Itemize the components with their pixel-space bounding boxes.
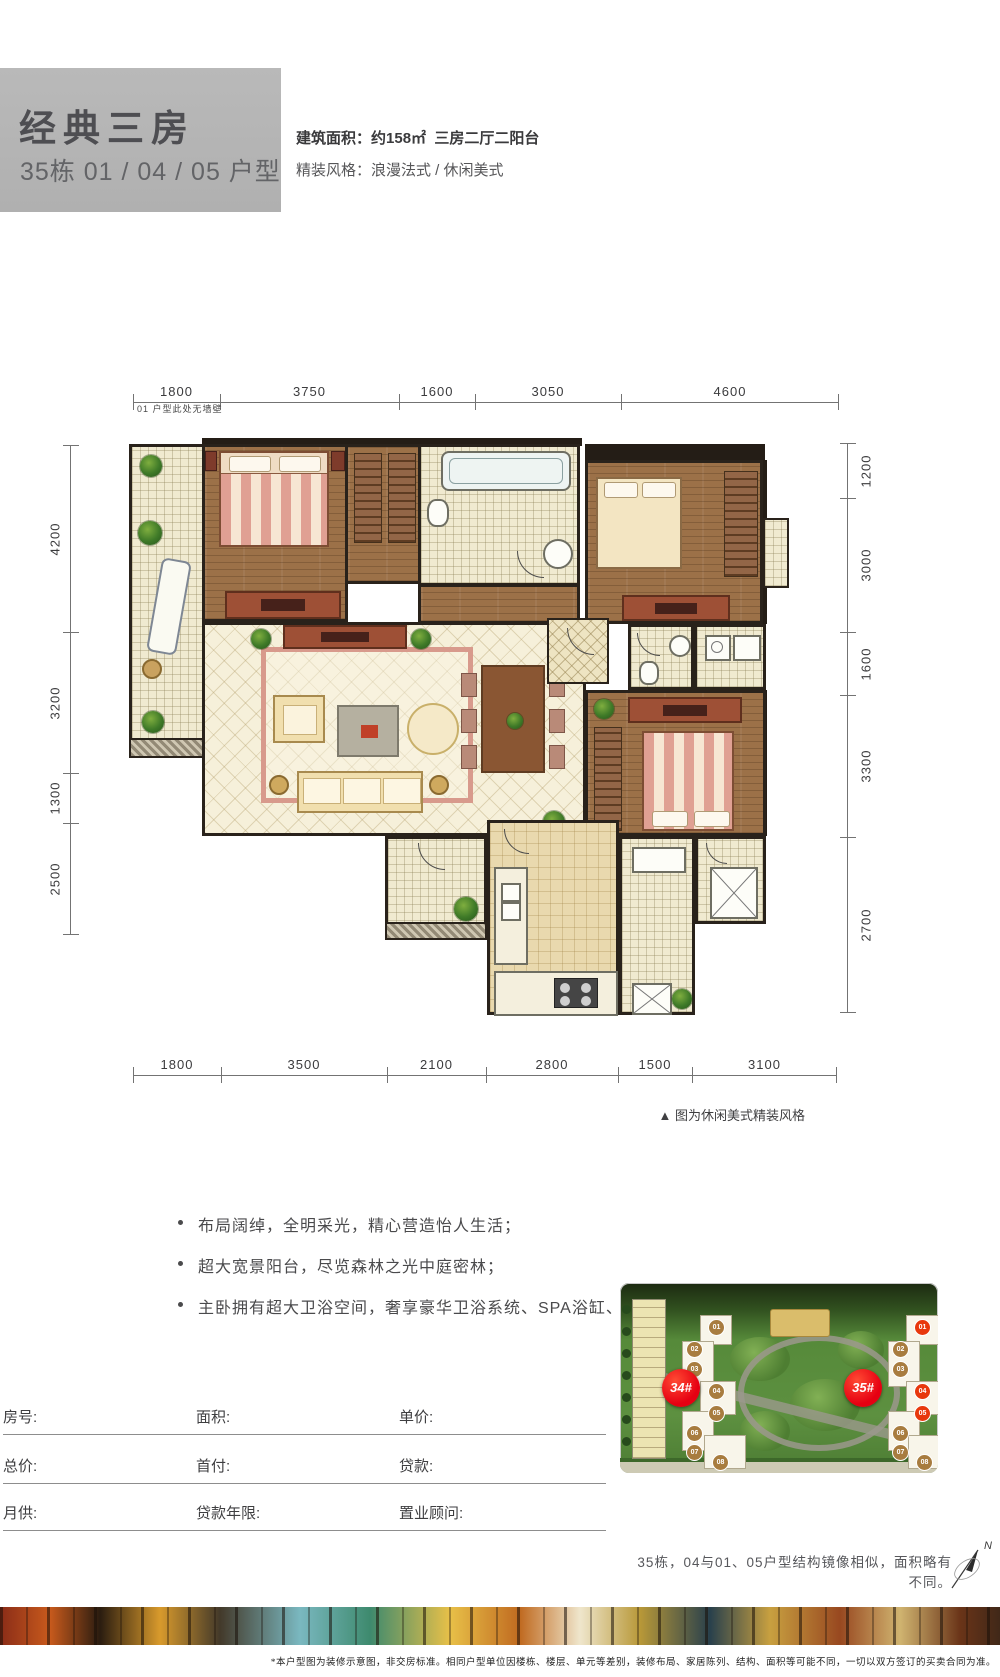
cabinet <box>632 847 686 873</box>
unit-subtitle: 35栋 01 / 04 / 05 户型 <box>20 152 281 188</box>
dim-right-2: 3000 <box>847 498 848 632</box>
form-label-room: 房号: <box>3 1406 37 1427</box>
dining-table <box>481 665 545 773</box>
spec-style-line: 精装风格：浪漫法式 / 休闲美式 <box>296 159 539 180</box>
dining-chair <box>549 709 565 733</box>
plant-icon <box>672 989 692 1009</box>
plant-icon <box>142 711 164 733</box>
unit-34-08: 08 <box>712 1454 729 1471</box>
toilet <box>427 499 449 527</box>
kitchen <box>487 820 619 1015</box>
siteplan-caption: 35栋，04与01、05户型结构镜像相似，面积略有不同。 <box>630 1551 952 1591</box>
coffee-table <box>337 705 399 757</box>
nightstand <box>205 451 217 471</box>
door-arc <box>418 843 445 870</box>
fridge <box>632 983 672 1015</box>
pillow <box>279 456 321 472</box>
perimeter-walk <box>620 1458 938 1473</box>
stove <box>554 978 598 1008</box>
unit-34-06: 06 <box>686 1425 703 1442</box>
tv-console <box>225 591 341 619</box>
wall-note: 01 户型此处无墙壁 <box>137 402 223 415</box>
plant-icon <box>454 897 478 921</box>
unit-34-02: 02 <box>686 1341 703 1358</box>
north-label: N <box>984 1540 992 1552</box>
dining-chair <box>549 745 565 769</box>
pillow <box>642 482 676 498</box>
sink-basin <box>501 902 521 921</box>
dim-bottom-6: 3100 <box>692 1059 837 1076</box>
unit-34-05: 05 <box>708 1405 725 1422</box>
side-table <box>269 775 289 795</box>
master-bedroom <box>202 444 348 622</box>
side-table <box>429 775 449 795</box>
balcony-rail <box>385 922 487 940</box>
form-row-3: 月供: 贷款年限: 置业顾问: <box>3 1500 606 1531</box>
feature-item: 超大宽景阳台，尽览森林之光中庭密林； <box>176 1253 759 1277</box>
spec-style-label: 精装风格： <box>296 162 371 179</box>
dim-top-3: 1600 <box>399 386 475 403</box>
bedroom-2 <box>585 460 763 624</box>
wardrobe-shelf <box>594 727 622 831</box>
bathroom-2 <box>628 624 694 690</box>
unit-35-04: 04 <box>914 1383 931 1400</box>
sofa <box>297 771 423 813</box>
dim-row-bottom: 1800 3500 2100 2800 1500 3100 <box>133 1059 837 1076</box>
sink <box>669 635 691 657</box>
dim-left-4: 2500 <box>70 823 71 935</box>
dresser <box>628 697 742 723</box>
unit-35-07: 07 <box>892 1444 909 1461</box>
master-bed <box>219 451 329 547</box>
ac-ledge <box>763 518 789 588</box>
dining-chair <box>461 673 477 697</box>
living-dining-room <box>202 622 586 836</box>
dining-chair <box>461 709 477 733</box>
toilet <box>639 661 659 685</box>
badge-34: 34# <box>662 1369 700 1407</box>
dim-top-1: 1800 <box>133 386 220 403</box>
bedroom-3 <box>585 690 766 836</box>
plant-icon <box>594 699 614 719</box>
dim-row-top: 1800 3750 1600 3050 4600 <box>133 386 839 403</box>
washer <box>705 635 731 661</box>
wardrobe-shelf <box>724 471 758 577</box>
dim-right-4: 3300 <box>847 695 848 837</box>
plan-caption: ▲ 图为休闲美式精装风格 <box>520 1105 805 1124</box>
street-building <box>632 1299 666 1459</box>
decorative-art-strip <box>0 1607 1000 1645</box>
master-bathroom <box>418 444 580 586</box>
unit-34-07: 07 <box>686 1444 703 1461</box>
balcony-left <box>129 444 205 758</box>
unit-35-02: 02 <box>892 1341 909 1358</box>
door-arc <box>517 551 544 578</box>
dim-left-2: 3200 <box>70 632 71 773</box>
bathroom-3 <box>695 836 766 924</box>
spec-style-value: 浪漫法式 / 休闲美式 <box>371 162 504 179</box>
dim-top-2: 3750 <box>220 386 399 403</box>
dim-bottom-4: 2800 <box>486 1059 618 1076</box>
dim-left-3: 1300 <box>70 773 71 823</box>
unit-34-01: 01 <box>708 1319 725 1336</box>
centerpiece <box>507 713 523 729</box>
counter <box>733 635 761 661</box>
walkin-closet <box>345 444 421 584</box>
disclaimer-text: *本户型图为装修示意图，非交房标准。相同户型单位因楼栋、楼层、单元等差别，装修布… <box>216 1654 996 1668</box>
unit-35-08: 08 <box>916 1454 933 1471</box>
north-compass-icon: N <box>948 1540 992 1594</box>
dining-chair <box>461 745 477 769</box>
nightstand <box>331 451 345 471</box>
door-arc <box>637 633 660 656</box>
door-arc <box>706 843 727 864</box>
dim-right-3: 1600 <box>847 632 848 695</box>
dim-col-left: 4200 3200 1300 2500 <box>70 445 71 935</box>
entry-foyer <box>547 618 609 684</box>
page-title: 经典三房 <box>19 98 195 152</box>
wardrobe-shelf <box>388 453 416 543</box>
x-mark-icon <box>634 985 670 1013</box>
spec-area-label: 建筑面积： <box>296 130 371 147</box>
round-table <box>407 703 459 755</box>
plant-icon <box>411 629 431 649</box>
dim-bottom-3: 2100 <box>387 1059 486 1076</box>
vanity-sink <box>543 539 573 569</box>
form-label-monthly: 月供: <box>3 1502 37 1523</box>
feature-item: 布局阔绰，全明采光，精心营造怡人生活； <box>176 1212 759 1236</box>
unit-35-03: 03 <box>892 1361 909 1378</box>
kitchen-counter <box>494 867 528 965</box>
kitchen-counter <box>494 971 618 1016</box>
clubhouse <box>770 1309 830 1337</box>
dim-right-5: 2700 <box>847 837 848 1013</box>
wall-top-right <box>585 444 765 460</box>
dim-left-1: 4200 <box>70 445 71 632</box>
plant-icon <box>140 455 162 477</box>
bed-3 <box>642 731 734 831</box>
plant-icon <box>138 521 162 545</box>
pillow <box>694 811 730 827</box>
service-room <box>619 836 695 1015</box>
dim-top-5: 4600 <box>621 386 839 403</box>
bed-2 <box>596 477 682 569</box>
bathtub <box>441 451 571 491</box>
utility-room <box>694 624 766 690</box>
form-row-2: 总价: 首付: 贷款: <box>3 1453 606 1484</box>
form-label-downpayment: 首付: <box>196 1455 230 1476</box>
form-label-loan: 贷款: <box>399 1455 433 1476</box>
spec-area-line: 建筑面积：约158㎡ 三房二厅二阳台 <box>296 127 539 148</box>
unit-35-06: 06 <box>892 1425 909 1442</box>
floorplan: 01 户型此处无墙壁 <box>123 438 829 1015</box>
dim-bottom-5: 1500 <box>618 1059 692 1076</box>
spec-area-extra: 三房二厅二阳台 <box>434 130 539 147</box>
unit-34-04: 04 <box>708 1383 725 1400</box>
unit-35-01: 01 <box>914 1319 931 1336</box>
form-row-1: 房号: 面积: 单价: <box>3 1404 606 1435</box>
dim-col-right: 1200 3000 1600 3300 2700 <box>847 443 848 1013</box>
form-label-unitprice: 单价: <box>399 1406 433 1427</box>
dim-right-1: 1200 <box>847 443 848 498</box>
unit-35-05: 05 <box>914 1405 931 1422</box>
shower <box>710 867 758 919</box>
pillow <box>229 456 271 472</box>
form-label-total: 总价: <box>3 1455 37 1476</box>
header-gray-panel: 经典三房 35栋 01 / 04 / 05 户型 <box>0 68 281 212</box>
form-label-area: 面积: <box>196 1406 230 1427</box>
pillow <box>652 811 688 827</box>
form-label-consultant: 置业顾问: <box>399 1502 463 1523</box>
dim-top-4: 3050 <box>475 386 621 403</box>
armchair <box>273 695 325 743</box>
wardrobe-shelf <box>354 453 382 543</box>
sink-basin <box>501 883 521 902</box>
x-mark-icon <box>712 869 756 917</box>
door-arc <box>567 628 594 655</box>
door-arc <box>504 829 529 854</box>
tv-cabinet <box>283 625 407 649</box>
lounge-chair <box>146 557 192 656</box>
site-plan: 01 02 03 04 05 06 07 08 01 02 03 04 05 0… <box>620 1283 938 1473</box>
dim-bottom-1: 1800 <box>133 1059 221 1076</box>
balcony-rail <box>129 738 205 758</box>
dim-bottom-2: 3500 <box>221 1059 387 1076</box>
spec-block: 建筑面积：约158㎡ 三房二厅二阳台 精装风格：浪漫法式 / 休闲美式 <box>296 127 539 180</box>
form-label-loanterm: 贷款年限: <box>196 1502 260 1523</box>
spec-area-value: 约158㎡ <box>371 130 426 147</box>
badge-35: 35# <box>844 1369 882 1407</box>
dresser <box>622 595 730 621</box>
plant-icon <box>251 629 271 649</box>
pillow <box>604 482 638 498</box>
side-table <box>142 659 162 679</box>
